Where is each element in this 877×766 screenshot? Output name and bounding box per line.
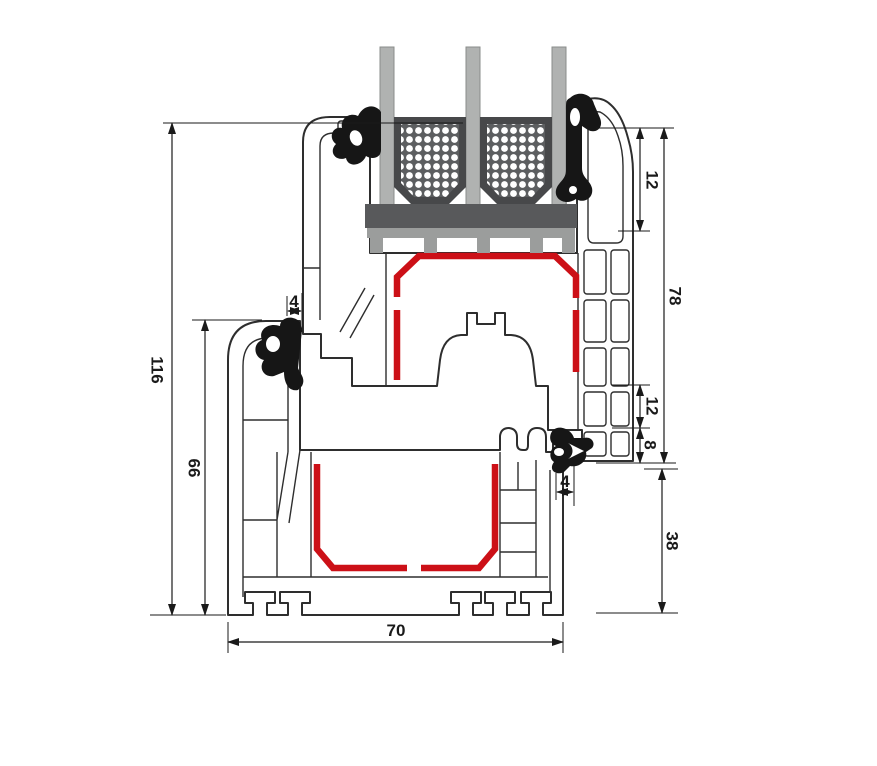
dim-label-12-mid: 12	[643, 397, 662, 416]
glazing-unit	[365, 47, 577, 253]
glazing-gasket-left	[332, 106, 381, 164]
drawing-svg: 116 66 70 12 78 12 8 38 4 4	[0, 0, 877, 766]
dim-label-70: 70	[387, 621, 406, 640]
dim-label-8: 8	[641, 440, 660, 449]
glass-pane-outer	[380, 47, 394, 206]
window-section-drawing: 116 66 70 12 78 12 8 38 4 4	[0, 0, 877, 766]
spacer-bar-left	[394, 117, 466, 204]
dim-label-66: 66	[185, 459, 204, 478]
dim-label-78: 78	[666, 287, 685, 306]
bridge-support-tabs	[370, 238, 575, 253]
dim-label-116: 116	[148, 356, 167, 383]
spacer-bar-right	[480, 117, 552, 204]
glass-pane-middle	[466, 47, 480, 206]
dim-label-38: 38	[663, 532, 682, 551]
dim-label-4-left: 4	[289, 292, 299, 311]
dim-label-12-top: 12	[643, 171, 662, 190]
dim-label-4-right: 4	[560, 472, 570, 491]
setting-block-bar	[365, 204, 577, 228]
glazing-bridge-bar	[367, 228, 575, 238]
